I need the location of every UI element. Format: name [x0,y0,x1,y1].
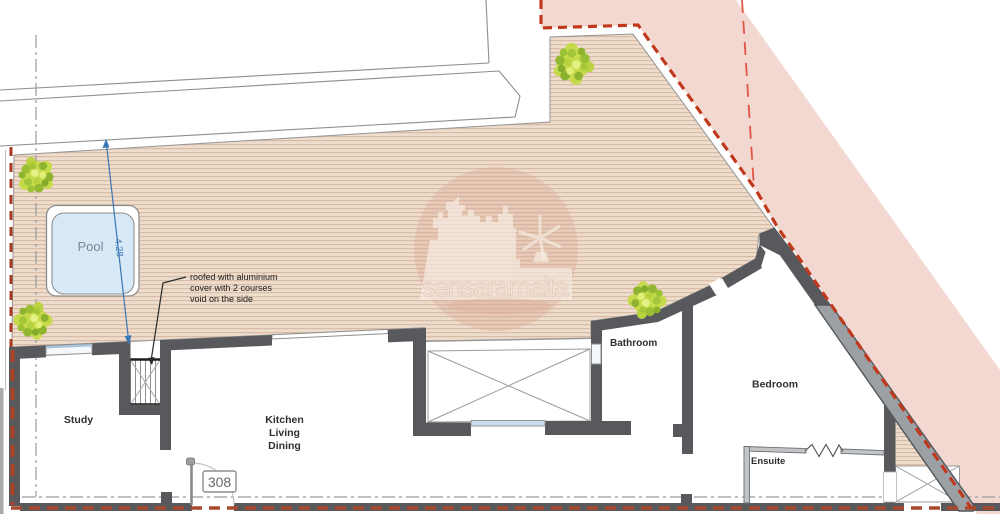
svg-text:Pool: Pool [77,239,103,254]
svg-text:Study: Study [64,414,93,426]
svg-text:Bedroom: Bedroom [752,379,798,391]
svg-text:4.28: 4.28 [112,238,125,258]
svg-text:Ensuite: Ensuite [751,456,785,467]
svg-text:Dining: Dining [268,440,301,452]
svg-text:void on the side: void on the side [190,294,253,304]
svg-text:cover with 2 courses: cover with 2 courses [190,283,273,293]
svg-text:Kitchen: Kitchen [265,414,304,426]
svg-text:roofed with aluminium: roofed with aluminium [190,272,278,282]
svg-text:308: 308 [208,474,232,490]
svg-text:sensaramalta: sensaramalta [422,272,570,302]
svg-text:Living: Living [269,427,300,439]
svg-text:Bathroom: Bathroom [610,338,657,349]
